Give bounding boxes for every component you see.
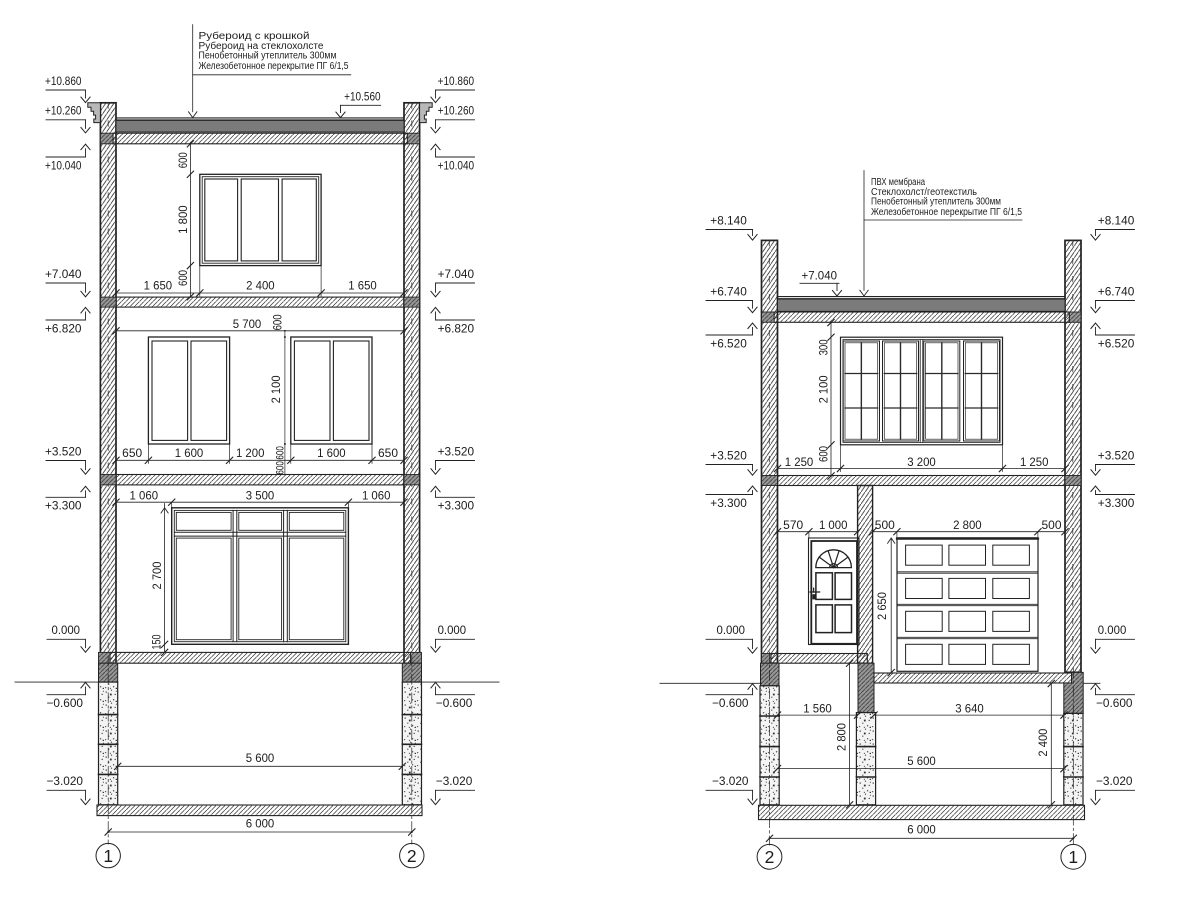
svg-text:+6.740: +6.740 [710, 284, 747, 298]
svg-text:Пенобетонный утеплитель 300мм: Пенобетонный утеплитель 300мм [199, 50, 337, 62]
svg-text:−0.600: −0.600 [436, 696, 473, 710]
svg-text:6 000: 6 000 [246, 817, 275, 830]
svg-text:600: 600 [817, 446, 831, 462]
svg-text:2: 2 [765, 847, 775, 867]
svg-text:+3.300: +3.300 [1098, 496, 1135, 510]
svg-text:+6.520: +6.520 [710, 336, 747, 350]
svg-text:+6.820: +6.820 [438, 321, 475, 335]
svg-text:Железобетонное перекрытие ПГ 6: Железобетонное перекрытие ПГ 6/1,5 [199, 60, 349, 72]
svg-text:+10.040: +10.040 [45, 158, 82, 172]
svg-text:+6.520: +6.520 [1098, 336, 1135, 350]
svg-text:+8.140: +8.140 [1098, 213, 1135, 227]
svg-text:1 600: 1 600 [317, 447, 346, 460]
svg-text:2 100: 2 100 [817, 375, 831, 403]
svg-text:2 800: 2 800 [834, 723, 848, 751]
svg-text:2 800: 2 800 [953, 519, 982, 532]
svg-text:1: 1 [103, 846, 113, 866]
svg-text:1 800: 1 800 [176, 205, 190, 234]
svg-text:600: 600 [176, 270, 190, 286]
svg-text:5 600: 5 600 [246, 752, 275, 765]
svg-text:1 650: 1 650 [144, 279, 173, 292]
svg-text:+7.040: +7.040 [438, 267, 475, 281]
svg-text:5 600: 5 600 [907, 755, 936, 768]
svg-text:1 600: 1 600 [175, 447, 204, 460]
svg-text:+3.300: +3.300 [45, 499, 82, 513]
svg-text:+6.820: +6.820 [45, 321, 82, 335]
svg-text:0.000: 0.000 [52, 623, 81, 637]
svg-text:1 200: 1 200 [236, 447, 265, 460]
svg-text:600: 600 [176, 152, 190, 168]
svg-text:−3.020: −3.020 [712, 774, 749, 788]
svg-text:2 650: 2 650 [875, 592, 889, 620]
svg-text:+3.520: +3.520 [45, 444, 82, 458]
svg-text:500: 500 [1042, 519, 1062, 532]
svg-text:5 700: 5 700 [233, 318, 262, 331]
svg-text:570: 570 [783, 519, 803, 532]
svg-text:+10.560: +10.560 [344, 89, 381, 103]
svg-text:Пенобетонный утеплитель 300мм: Пенобетонный утеплитель 300мм [871, 196, 1001, 208]
svg-text:2 400: 2 400 [1036, 728, 1050, 756]
svg-text:1 060: 1 060 [362, 489, 391, 502]
svg-text:2 100: 2 100 [269, 375, 283, 403]
svg-text:650: 650 [378, 447, 398, 460]
svg-text:1 650: 1 650 [348, 279, 377, 292]
svg-text:+10.260: +10.260 [45, 104, 82, 118]
svg-text:1 560: 1 560 [803, 702, 832, 715]
svg-text:+3.520: +3.520 [1098, 448, 1135, 462]
svg-text:−3.020: −3.020 [1096, 774, 1133, 788]
svg-text:600: 600 [274, 446, 286, 460]
svg-text:2 700: 2 700 [150, 561, 164, 589]
svg-text:0.000: 0.000 [1098, 623, 1127, 637]
svg-text:650: 650 [122, 447, 142, 460]
svg-text:2: 2 [407, 846, 417, 866]
svg-text:3 200: 3 200 [907, 456, 936, 469]
svg-text:3 640: 3 640 [955, 702, 984, 715]
svg-text:150: 150 [150, 634, 164, 649]
svg-text:+10.260: +10.260 [438, 104, 475, 118]
svg-text:+3.300: +3.300 [438, 499, 475, 513]
svg-text:0.000: 0.000 [717, 623, 746, 637]
svg-text:+7.040: +7.040 [802, 268, 838, 282]
svg-text:6 000: 6 000 [907, 824, 936, 837]
svg-text:+3.520: +3.520 [438, 444, 475, 458]
svg-text:1 250: 1 250 [785, 456, 814, 469]
svg-text:1: 1 [1068, 847, 1078, 867]
svg-text:1 250: 1 250 [1020, 456, 1048, 469]
svg-text:−0.600: −0.600 [47, 696, 84, 710]
svg-text:0.000: 0.000 [438, 623, 467, 637]
svg-text:+3.300: +3.300 [710, 496, 747, 510]
svg-text:600: 600 [274, 461, 286, 475]
svg-text:+8.140: +8.140 [710, 213, 747, 227]
svg-text:Железобетонное перекрытие ПГ 6: Железобетонное перекрытие ПГ 6/1,5 [871, 206, 1022, 218]
svg-text:1 060: 1 060 [130, 489, 159, 502]
svg-text:+10.860: +10.860 [438, 74, 475, 88]
svg-text:−3.020: −3.020 [436, 774, 473, 788]
svg-text:1 000: 1 000 [819, 519, 848, 532]
svg-text:2 400: 2 400 [246, 279, 275, 292]
svg-text:+3.520: +3.520 [710, 448, 747, 462]
svg-text:+10.040: +10.040 [438, 158, 475, 172]
svg-text:−0.600: −0.600 [1096, 696, 1133, 710]
svg-text:−3.020: −3.020 [47, 774, 84, 788]
svg-text:+6.740: +6.740 [1098, 284, 1135, 298]
svg-text:+10.860: +10.860 [45, 74, 82, 88]
svg-text:+7.040: +7.040 [45, 267, 82, 281]
svg-text:600: 600 [270, 314, 284, 330]
svg-text:500: 500 [875, 519, 895, 532]
svg-text:3 500: 3 500 [246, 489, 275, 502]
svg-text:−0.600: −0.600 [712, 696, 749, 710]
svg-text:300: 300 [817, 339, 831, 355]
